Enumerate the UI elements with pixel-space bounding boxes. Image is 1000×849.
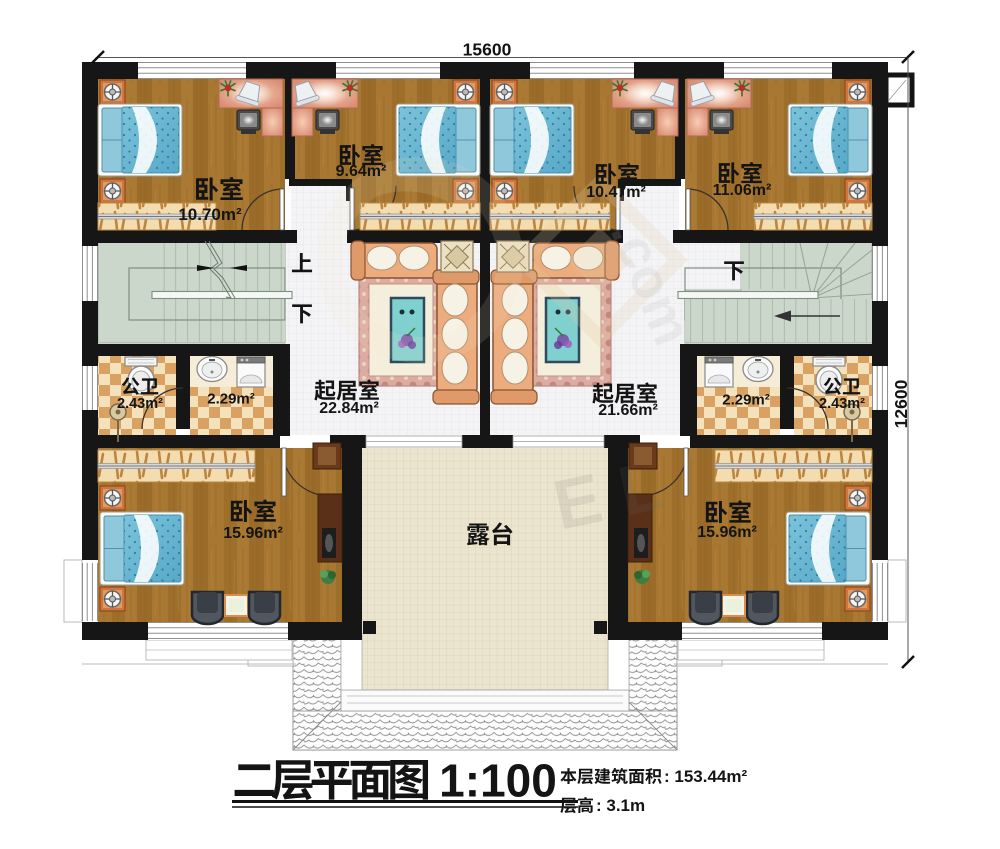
svg-text:15.96m²: 15.96m² <box>223 525 283 542</box>
svg-text:2.29m²: 2.29m² <box>207 390 255 407</box>
svg-text:2.43m²: 2.43m² <box>117 396 163 412</box>
svg-text:15600: 15600 <box>463 39 512 59</box>
svg-text:15.96m²: 15.96m² <box>697 524 757 541</box>
svg-text:22.84m²: 22.84m² <box>319 400 379 417</box>
svg-text:: 153.44m²: : 153.44m² <box>664 767 747 786</box>
svg-text:: 3.1m: : 3.1m <box>596 796 645 815</box>
svg-text:21.66m²: 21.66m² <box>598 402 658 419</box>
svg-text:2.43m²: 2.43m² <box>819 396 865 412</box>
svg-text:10.70m²: 10.70m² <box>178 205 242 224</box>
svg-text:2.29m²: 2.29m² <box>722 391 770 408</box>
svg-text:10.47m²: 10.47m² <box>586 184 646 201</box>
svg-text:1:100: 1:100 <box>439 755 557 807</box>
svg-text:11.06m²: 11.06m² <box>713 182 772 199</box>
svg-text:9.64m²: 9.64m² <box>336 163 387 180</box>
svg-text:12600: 12600 <box>891 379 911 428</box>
